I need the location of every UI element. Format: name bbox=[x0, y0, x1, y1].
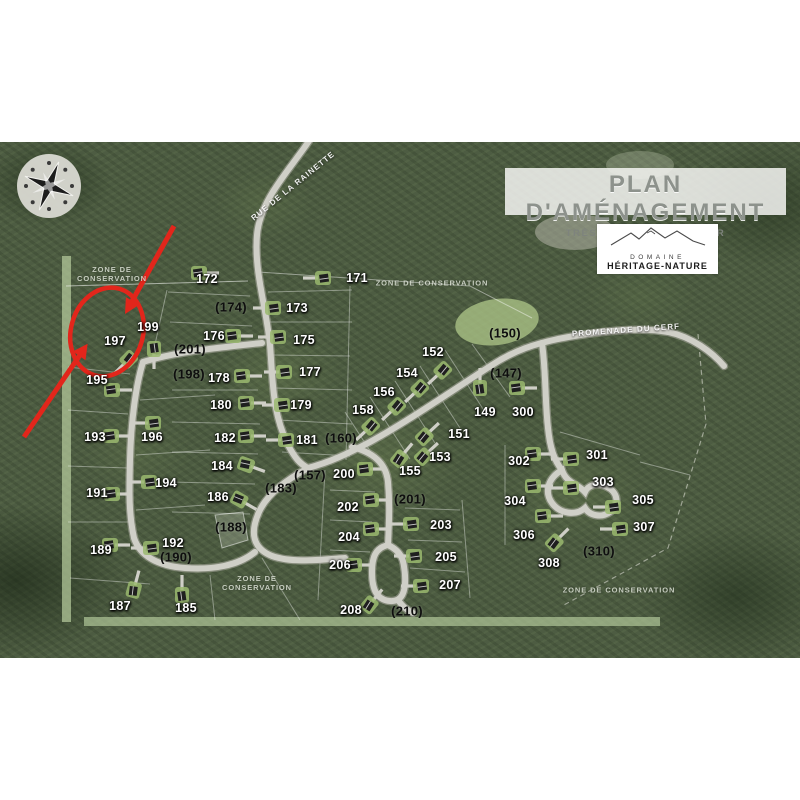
lot-label-307: 307 bbox=[633, 520, 655, 534]
lot-label-153: 153 bbox=[429, 450, 451, 464]
lot-label-149: 149 bbox=[474, 405, 496, 419]
lot-label-303: 303 bbox=[592, 475, 614, 489]
zone-label-0: ZONE DE CONSERVATION bbox=[77, 265, 147, 283]
house-marker bbox=[303, 271, 331, 285]
house-marker bbox=[125, 569, 146, 600]
lot-label-196: 196 bbox=[141, 430, 163, 444]
house-marker bbox=[423, 360, 453, 389]
lot-label-186: 186 bbox=[207, 490, 229, 504]
lot-label-197: 197 bbox=[104, 334, 126, 348]
house-marker bbox=[509, 381, 537, 395]
lot-label-192: 192 bbox=[162, 536, 184, 550]
zone-label-3: ZONE DE CONSERVATION bbox=[563, 586, 676, 595]
conservation-strip-left bbox=[62, 256, 71, 622]
lot-label-151: 151 bbox=[448, 427, 470, 441]
house-marker bbox=[266, 433, 294, 447]
clearing bbox=[452, 293, 542, 350]
house-marker bbox=[104, 383, 132, 397]
house-marker bbox=[175, 575, 189, 603]
lot-label-194: 194 bbox=[155, 476, 177, 490]
lot-label-155: 155 bbox=[399, 464, 421, 478]
lot-label-300: 300 bbox=[512, 405, 534, 419]
mountain-icon bbox=[597, 224, 718, 248]
lot-label-182: 182 bbox=[214, 431, 236, 445]
lot-label-172: 172 bbox=[196, 272, 218, 286]
lot-label-reserved-147: (147) bbox=[490, 366, 522, 381]
lot-label-302: 302 bbox=[508, 454, 530, 468]
zone-label-1: ZONE DE CONSERVATION bbox=[376, 279, 489, 288]
lot-label-207: 207 bbox=[439, 578, 461, 592]
house-marker bbox=[234, 369, 262, 383]
lot-label-180: 180 bbox=[210, 398, 232, 412]
logo-line2: HÉRITAGE-NATURE bbox=[597, 261, 718, 271]
house-marker bbox=[391, 517, 419, 531]
lot-label-189: 189 bbox=[90, 543, 112, 557]
compass-rose-icon bbox=[15, 152, 83, 220]
lot-label-185: 185 bbox=[175, 601, 197, 615]
lot-label-308: 308 bbox=[538, 556, 560, 570]
lot-label-195: 195 bbox=[86, 373, 108, 387]
lot-label-176: 176 bbox=[203, 329, 225, 343]
house-marker bbox=[253, 301, 281, 315]
lot-label-reserved-150: (150) bbox=[489, 326, 521, 341]
lot-label-reserved-157: (157) bbox=[294, 468, 326, 483]
house-marker bbox=[238, 396, 266, 410]
lot-label-205: 205 bbox=[435, 550, 457, 564]
highlight-arrow-short bbox=[24, 355, 80, 437]
lot-label-191: 191 bbox=[86, 486, 108, 500]
lot-label-177: 177 bbox=[299, 365, 321, 379]
lot-label-301: 301 bbox=[586, 448, 608, 462]
house-marker bbox=[600, 522, 628, 536]
lot-label-reserved-201: (201) bbox=[394, 492, 426, 507]
house-marker bbox=[236, 455, 267, 478]
lot-lines bbox=[66, 272, 690, 620]
lot-label-187: 187 bbox=[109, 599, 131, 613]
lot-label-193: 193 bbox=[84, 430, 106, 444]
lot-label-179: 179 bbox=[290, 398, 312, 412]
lot-label-181: 181 bbox=[296, 433, 318, 447]
house-marker bbox=[262, 398, 290, 412]
lot-label-306: 306 bbox=[513, 528, 535, 542]
house-marker bbox=[544, 524, 574, 554]
logo-line1: DOMAINE bbox=[597, 254, 718, 261]
lot-label-156: 156 bbox=[373, 385, 395, 399]
lot-label-reserved-190: (190) bbox=[160, 550, 192, 565]
lot-label-reserved-201: (201) bbox=[174, 342, 206, 357]
lot-label-171: 171 bbox=[346, 271, 368, 285]
lot-label-reserved-210: (210) bbox=[391, 604, 423, 619]
lot-label-175: 175 bbox=[293, 333, 315, 347]
lot-label-154: 154 bbox=[396, 366, 418, 380]
lot-label-152: 152 bbox=[422, 345, 444, 359]
lot-label-206: 206 bbox=[329, 558, 351, 572]
house-marker bbox=[400, 378, 430, 407]
lot-label-202: 202 bbox=[337, 500, 359, 514]
lot-label-184: 184 bbox=[211, 459, 233, 473]
lot-label-305: 305 bbox=[632, 493, 654, 507]
lot-label-reserved-174: (174) bbox=[215, 300, 247, 315]
page-title: PLAN D'AMÉNAGEMENT bbox=[505, 171, 786, 227]
brand-logo: DOMAINE HÉRITAGE-NATURE bbox=[597, 224, 718, 274]
lot-label-208: 208 bbox=[340, 603, 362, 617]
lot-label-reserved-198: (198) bbox=[173, 367, 205, 382]
lot-label-reserved-183: (183) bbox=[265, 481, 297, 496]
house-marker bbox=[414, 418, 444, 447]
site-plan-page: 1721711731761751781771801791821811841861… bbox=[0, 0, 800, 800]
house-marker bbox=[147, 341, 161, 369]
lot-label-199: 199 bbox=[137, 320, 159, 334]
lot-label-200: 200 bbox=[333, 467, 355, 481]
house-marker bbox=[238, 429, 266, 443]
title-banner: PLAN D'AMÉNAGEMENT TRÈS-SAINT-RÉDEMPTEUR bbox=[505, 168, 786, 215]
lot-label-reserved-310: (310) bbox=[583, 544, 615, 559]
house-marker bbox=[133, 416, 161, 430]
zone-label-2: ZONE DE CONSERVATION bbox=[222, 574, 292, 592]
lot-label-178: 178 bbox=[208, 371, 230, 385]
lot-label-158: 158 bbox=[352, 403, 374, 417]
conservation-strip-bottom bbox=[84, 617, 660, 626]
lot-label-173: 173 bbox=[286, 301, 308, 315]
lot-label-304: 304 bbox=[504, 494, 526, 508]
house-marker bbox=[551, 481, 579, 495]
boundary-dashed-right bbox=[562, 334, 706, 606]
lot-label-reserved-160: (160) bbox=[325, 431, 357, 446]
lot-label-203: 203 bbox=[430, 518, 452, 532]
aerial-map: 1721711731761751781771801791821811841861… bbox=[0, 142, 800, 658]
lot-label-reserved-188: (188) bbox=[215, 520, 247, 535]
lot-label-204: 204 bbox=[338, 530, 360, 544]
